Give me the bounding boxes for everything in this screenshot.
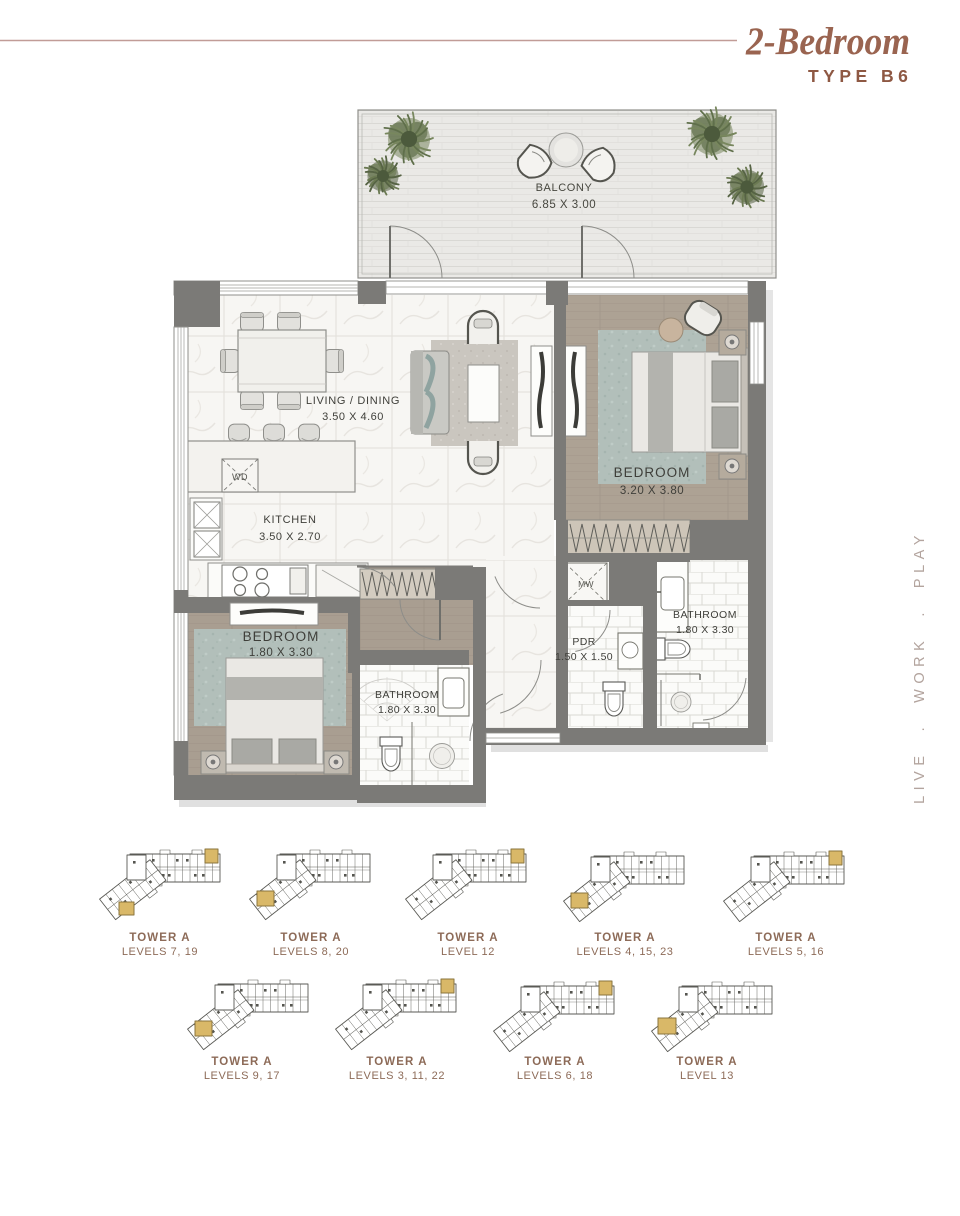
svg-text:LEVELS 9, 17: LEVELS 9, 17 — [204, 1070, 280, 1082]
svg-text:LIVE . WORK . PLAY: LIVE . WORK . PLAY — [912, 530, 928, 804]
svg-text:TOWER A: TOWER A — [211, 1056, 272, 1068]
svg-text:TOWER A: TOWER A — [129, 932, 190, 944]
svg-text:BATHROOM: BATHROOM — [673, 609, 737, 621]
svg-text:TOWER A: TOWER A — [280, 932, 341, 944]
svg-text:TOWER A: TOWER A — [755, 932, 816, 944]
svg-text:1.80 X 3.30: 1.80 X 3.30 — [378, 704, 436, 716]
svg-text:KITCHEN: KITCHEN — [263, 514, 316, 526]
svg-text:BEDROOM: BEDROOM — [243, 629, 320, 644]
svg-text:LIVING / DINING: LIVING / DINING — [306, 395, 400, 407]
svg-text:3.50 X 2.70: 3.50 X 2.70 — [259, 531, 321, 543]
svg-text:BALCONY: BALCONY — [536, 182, 593, 194]
svg-text:WD: WD — [232, 472, 248, 482]
svg-text:TOWER A: TOWER A — [366, 1056, 427, 1068]
svg-text:TOWER A: TOWER A — [437, 932, 498, 944]
svg-text:LEVEL 13: LEVEL 13 — [680, 1070, 734, 1082]
svg-text:TOWER A: TOWER A — [676, 1056, 737, 1068]
svg-text:1.80 X 3.30: 1.80 X 3.30 — [676, 624, 734, 636]
svg-text:1.50 X 1.50: 1.50 X 1.50 — [555, 651, 613, 663]
svg-text:LEVELS 8, 20: LEVELS 8, 20 — [273, 946, 349, 958]
svg-text:3.20 X 3.80: 3.20 X 3.80 — [620, 485, 684, 497]
svg-text:LEVELS 4, 15, 23: LEVELS 4, 15, 23 — [576, 946, 673, 958]
svg-text:TOWER A: TOWER A — [524, 1056, 585, 1068]
svg-text:LEVELS 5, 16: LEVELS 5, 16 — [748, 946, 824, 958]
svg-text:BEDROOM: BEDROOM — [614, 465, 691, 480]
svg-text:LEVELS 7, 19: LEVELS 7, 19 — [122, 946, 198, 958]
svg-text:MW: MW — [578, 579, 594, 589]
svg-text:LEVELS 6, 18: LEVELS 6, 18 — [517, 1070, 593, 1082]
svg-text:LEVEL 12: LEVEL 12 — [441, 946, 495, 958]
svg-text:6.85 X 3.00: 6.85 X 3.00 — [532, 199, 596, 211]
svg-text:LEVELS 3, 11, 22: LEVELS 3, 11, 22 — [349, 1070, 445, 1082]
svg-text:2-Bedroom: 2-Bedroom — [745, 20, 910, 63]
svg-text:BATHROOM: BATHROOM — [375, 689, 439, 701]
svg-text:1.80 X 3.30: 1.80 X 3.30 — [249, 647, 313, 659]
svg-text:TOWER A: TOWER A — [594, 932, 655, 944]
svg-text:PDR: PDR — [572, 636, 595, 648]
svg-text:TYPE B6: TYPE B6 — [808, 66, 911, 86]
svg-text:3.50 X 4.60: 3.50 X 4.60 — [322, 411, 384, 423]
